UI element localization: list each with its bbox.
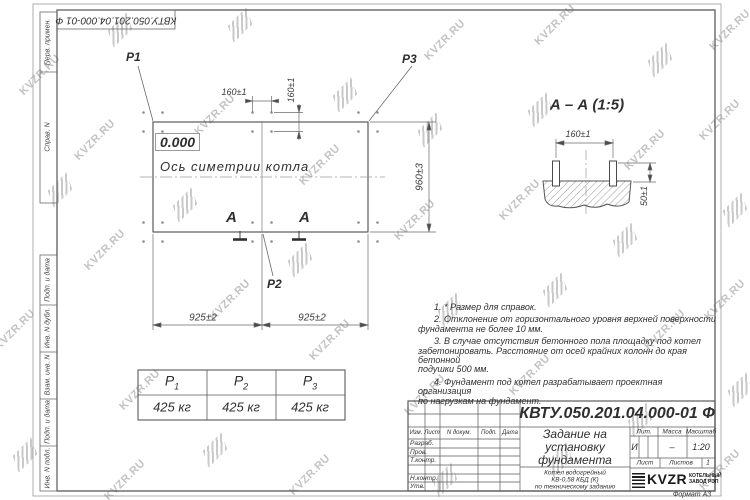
side-label-podp-data-1: Подп. и дата: [45, 258, 52, 302]
anchor-bolt-right: [610, 161, 617, 186]
side-label-inv-podl: Инв. N подл.: [45, 448, 52, 489]
note-line: подушки 500 мм.: [418, 365, 716, 374]
col-data: Дата: [502, 430, 518, 436]
note-line: фундамента не более 10 мм.: [418, 325, 716, 334]
scale-label: Масштаб: [686, 428, 716, 435]
col-izm: Изм.: [410, 430, 423, 436]
row-nkontr: Н.контр.: [410, 475, 438, 482]
brand-sub-line-2: ЗАВОД РЭП: [689, 479, 722, 485]
dim-section-height: 50±1: [639, 186, 649, 206]
row-prov: Пров.: [410, 449, 427, 456]
title-block-doc-number: КВТУ.050.201.04.000-01 Ф: [519, 405, 715, 423]
section-dims: [556, 139, 656, 182]
side-label-sprav-n: Справ. N: [45, 122, 52, 151]
span-dims: [153, 234, 368, 330]
load-table-header-p1: P1: [165, 373, 179, 392]
side-label-podp-data-2: Подп. и дата: [45, 400, 52, 444]
format-label: Формат А3: [673, 491, 711, 498]
dim-span-left: 925±2: [189, 313, 217, 324]
lit-label: Лит.: [636, 428, 651, 435]
load-table-header-p2: P2: [234, 373, 248, 392]
p-letter: P: [303, 373, 312, 389]
bolt-dims: [245, 96, 303, 140]
scale-value: 1:20: [692, 442, 710, 452]
drawing-linework: [0, 0, 750, 500]
anchor-bolt-left: [553, 161, 560, 186]
section-letter-right: A: [299, 209, 310, 226]
p-letter: P: [234, 373, 243, 389]
sheets-value: 1: [706, 460, 710, 467]
load-table-value-p1: 425 кг: [153, 400, 191, 415]
dim-span-right: 925±2: [298, 313, 326, 324]
sheet-label: Лист: [637, 460, 654, 467]
load-table-value-p3: 425 кг: [291, 400, 329, 415]
row-razrab: Разраб.: [410, 440, 434, 447]
load-table-value-p2: 425 кг: [222, 400, 260, 415]
p-sub: 2: [243, 381, 248, 391]
dim-plan-height: 960±3: [415, 163, 426, 191]
drawing-sheet: KVZR.RUKVZR.RUKVZR.RUKVZR.RUKVZR.RUKVZR.…: [0, 0, 750, 500]
dim-bolt-horizontal: 160±1: [222, 87, 247, 97]
plan-load-label-p2: P2: [267, 277, 282, 291]
row-utv: Утв.: [410, 483, 425, 490]
plan-load-label-p1: P1: [126, 50, 141, 64]
sheets-label: Листов: [669, 460, 693, 467]
col-podp: Подп.: [481, 430, 497, 436]
dim-bolt-vertical: 160±1: [286, 78, 296, 103]
section-title: А – А (1:5): [550, 97, 624, 114]
p-sub: 1: [174, 381, 179, 391]
lit-value: И: [631, 442, 637, 452]
note-line: 4. Фундамент под котел разрабатывает про…: [418, 378, 716, 397]
subtitle-line-2: КВ-0,58 КБД (К): [551, 477, 598, 484]
col-ndokum: N докум.: [447, 430, 471, 436]
note-line: 1. * Размер для справок.: [418, 303, 716, 312]
kvzr-brand-subtitle: КОТЕЛЬНЫЙ ЗАВОД РЭП: [689, 473, 722, 485]
foundation-plan: [138, 66, 436, 330]
title-line-3: фундамента: [538, 453, 612, 467]
technical-notes: 1. * Размер для справок. 2. Отклонение о…: [418, 303, 716, 406]
kvzr-coil-icon: [632, 471, 645, 488]
load-table-header-p3: P3: [303, 373, 317, 392]
p-sub: 3: [312, 381, 317, 391]
subtitle-line-3: по техническому заданию: [535, 484, 615, 491]
title-line-1: Задание на: [543, 427, 607, 441]
elevation-mark: 0.000: [155, 133, 200, 151]
row-tkontr: Т.контр.: [410, 457, 436, 464]
dim-section-spacing: 160±1: [566, 129, 591, 139]
height-dim: [370, 122, 436, 232]
note-line: забетонировать. Расстояние от осей крайн…: [418, 347, 716, 366]
p-letter: P: [165, 373, 174, 389]
top-stamp-doc-number: КВТУ.050.201.04.000-01 Ф: [55, 14, 176, 25]
mass-label: Масса: [662, 428, 681, 435]
section-letter-left: A: [226, 209, 237, 226]
title-line-2: установку: [545, 440, 605, 454]
side-label-perv-primen: Перв. примен.: [45, 19, 52, 66]
mass-value: –: [669, 442, 674, 452]
kvzr-brand: KVZR: [647, 471, 687, 487]
col-list: Лист: [424, 430, 439, 436]
side-label-vzam-inv: Взам. инв. N: [45, 355, 52, 396]
subtitle-line-1: Котел водогрейный: [544, 470, 606, 477]
plan-load-label-p3: P3: [402, 52, 417, 66]
side-label-inv-dubl: Инв. N дубл.: [45, 308, 52, 349]
axis-of-symmetry-label: Ось симетрии котла: [160, 159, 309, 174]
